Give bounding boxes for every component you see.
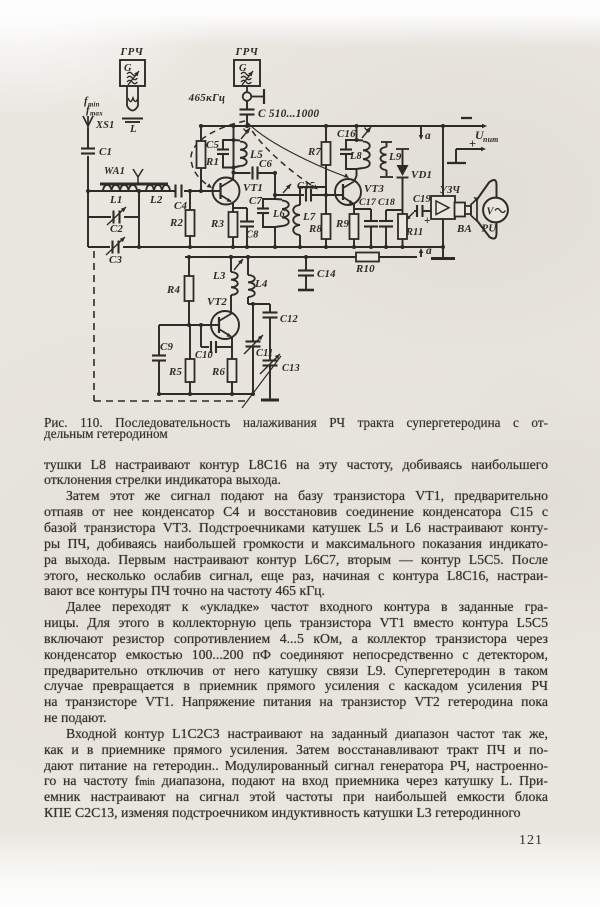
svg-text:C13: C13 (282, 363, 300, 374)
svg-text:ГРЧ: ГРЧ (120, 46, 144, 58)
svg-text:+: + (469, 137, 476, 151)
svg-text:L7: L7 (302, 211, 316, 223)
svg-text:R6: R6 (211, 366, 225, 378)
svg-text:C17: C17 (359, 197, 377, 208)
svg-text:XS1: XS1 (95, 120, 115, 131)
svg-text:R8: R8 (308, 223, 322, 235)
svg-text:С3: С3 (109, 254, 122, 266)
svg-text:L4: L4 (254, 278, 268, 290)
svg-text:С6: С6 (259, 158, 272, 170)
svg-text:С2: С2 (110, 223, 123, 235)
svg-text:R3: R3 (210, 218, 224, 230)
svg-text:L6: L6 (272, 209, 286, 220)
svg-text:L2: L2 (149, 194, 163, 206)
svg-text:C14: C14 (317, 268, 336, 280)
svg-text:a: a (426, 245, 432, 257)
svg-text:VD1: VD1 (411, 169, 432, 181)
svg-text:С 510...1000: С 510...1000 (258, 108, 319, 120)
svg-text:R11: R11 (405, 227, 423, 238)
svg-text:465кГц: 465кГц (188, 92, 226, 104)
svg-text:VT2: VT2 (207, 296, 227, 308)
svg-text:a: a (425, 130, 431, 142)
svg-text:C18: C18 (378, 197, 395, 208)
svg-text:C9: C9 (160, 341, 173, 353)
svg-text:VT1: VT1 (243, 182, 263, 194)
svg-text:C19: C19 (413, 194, 432, 205)
svg-text:VT3: VT3 (364, 183, 384, 195)
svg-text:L8: L8 (349, 151, 363, 162)
svg-text:R5: R5 (168, 366, 182, 378)
svg-text:WA1: WA1 (104, 166, 125, 177)
svg-text:R2: R2 (169, 217, 183, 229)
svg-text:+: + (424, 215, 431, 227)
svg-text:L: L (129, 123, 137, 135)
svg-text:R4: R4 (166, 284, 180, 296)
svg-text:R9: R9 (335, 218, 349, 230)
svg-text:C4: C4 (174, 200, 187, 212)
svg-text:C7: C7 (249, 195, 262, 207)
svg-text:PU: PU (482, 223, 498, 235)
svg-text:C1: C1 (99, 146, 112, 158)
svg-text:L9: L9 (388, 151, 402, 163)
svg-text:R1: R1 (205, 156, 219, 168)
svg-text:L1: L1 (109, 194, 123, 206)
svg-text:R7: R7 (307, 146, 321, 158)
svg-text:C10: C10 (195, 350, 214, 361)
svg-text:C12: C12 (280, 314, 298, 325)
svg-text:R10: R10 (355, 263, 375, 275)
svg-text:max: max (90, 111, 103, 118)
svg-text:ГРЧ: ГРЧ (235, 46, 259, 58)
svg-text:пит: пит (483, 135, 499, 144)
svg-text:L3: L3 (212, 270, 226, 282)
svg-text:C16: C16 (337, 128, 356, 140)
svg-text:УЗЧ: УЗЧ (440, 185, 462, 196)
svg-text:BA: BA (456, 223, 472, 235)
svg-text:V: V (487, 207, 495, 218)
svg-text:С8: С8 (246, 230, 259, 241)
svg-text:C5: C5 (206, 139, 219, 151)
